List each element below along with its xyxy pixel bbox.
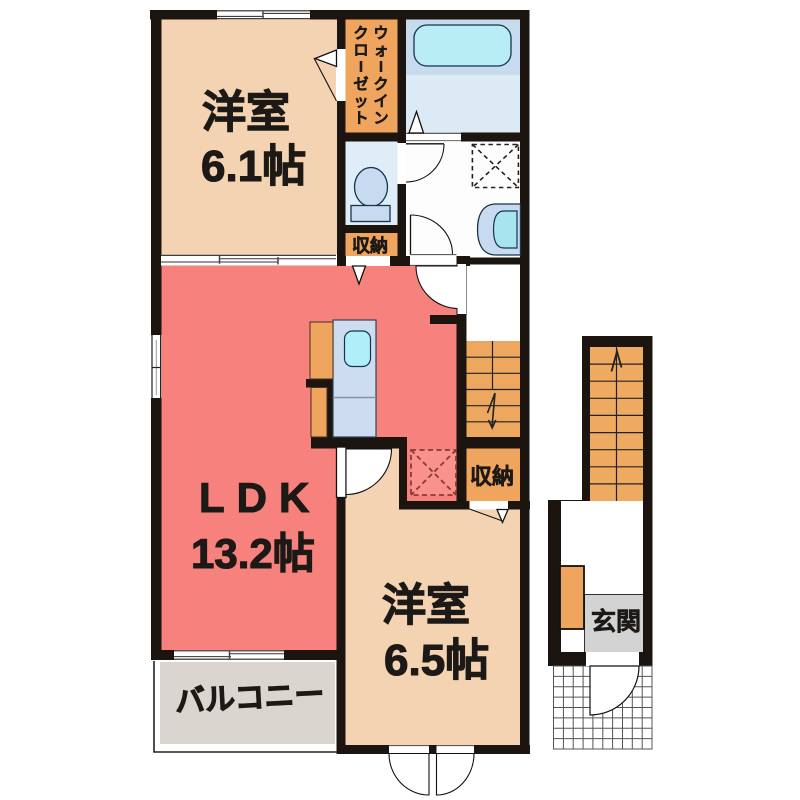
svg-text:13.2帖: 13.2帖 — [191, 530, 315, 577]
svg-text:ウ: ウ — [373, 25, 388, 42]
svg-text:洋室: 洋室 — [202, 87, 290, 137]
svg-text:収納: 収納 — [470, 464, 514, 489]
svg-text:玄関: 玄関 — [591, 607, 641, 636]
svg-text:LDK: LDK — [199, 474, 321, 521]
svg-text:ゼ: ゼ — [353, 75, 368, 93]
svg-text:ォ: ォ — [373, 42, 388, 59]
svg-text:6.5帖: 6.5帖 — [384, 636, 489, 685]
svg-text:ク: ク — [353, 25, 368, 42]
svg-text:ン: ン — [373, 110, 388, 127]
svg-text:イ: イ — [373, 93, 388, 110]
svg-text:ク: ク — [373, 76, 388, 93]
svg-text:ッ: ッ — [353, 93, 368, 110]
svg-text:ト: ト — [353, 110, 368, 127]
svg-text:収納: 収納 — [352, 235, 388, 256]
svg-text:洋室: 洋室 — [382, 580, 470, 630]
svg-text:ロ: ロ — [353, 42, 368, 59]
svg-text:6.1帖: 6.1帖 — [201, 142, 306, 191]
